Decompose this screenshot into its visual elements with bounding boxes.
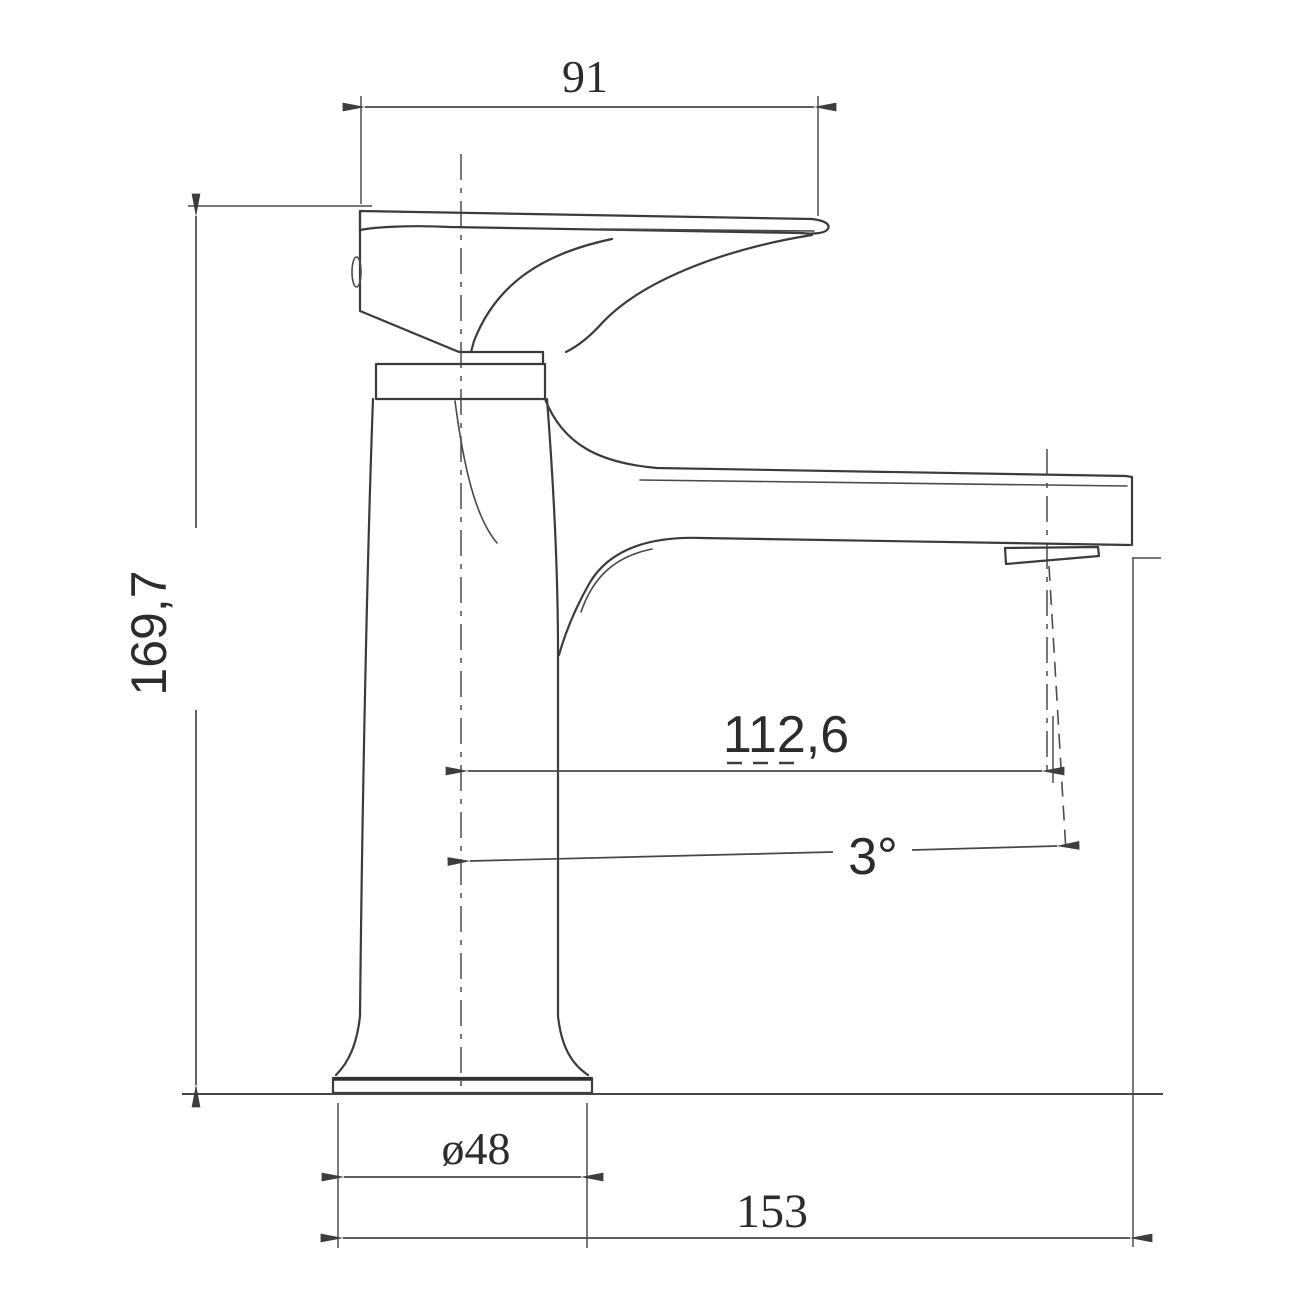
valve-body-outline [360, 211, 543, 364]
faucet-outline [333, 211, 1132, 1093]
dimension-lines [196, 107, 1130, 1238]
spout-underside [559, 538, 1130, 655]
aerator-tip [1005, 547, 1099, 564]
label-base-diameter: ø48 [442, 1123, 511, 1174]
spout-top-inner-line [640, 480, 1127, 486]
technical-drawing-page: 91 169,7 112,6 3° ø48 153 [0, 0, 1305, 1305]
label-overall-height: 169,7 [121, 570, 177, 695]
extension-lines [188, 96, 1161, 1248]
dimline-spout-angle-right [912, 846, 1057, 850]
technical-drawing-canvas: 91 169,7 112,6 3° ø48 153 [0, 0, 1305, 1305]
column-right-edge [547, 399, 588, 1075]
spout-top-edge [545, 399, 1132, 545]
column-left-edge [336, 399, 373, 1075]
label-handle-width: 91 [562, 51, 608, 102]
centerlines [461, 154, 1066, 1092]
handle-neck-rear-curve [566, 235, 812, 352]
label-spout-reach: 112,6 [723, 706, 849, 764]
label-overall-depth: 153 [736, 1185, 808, 1238]
dimline-spout-angle-left [470, 852, 833, 861]
spout-angle-reference-line [1049, 566, 1066, 852]
label-spout-angle: 3° [848, 828, 898, 886]
